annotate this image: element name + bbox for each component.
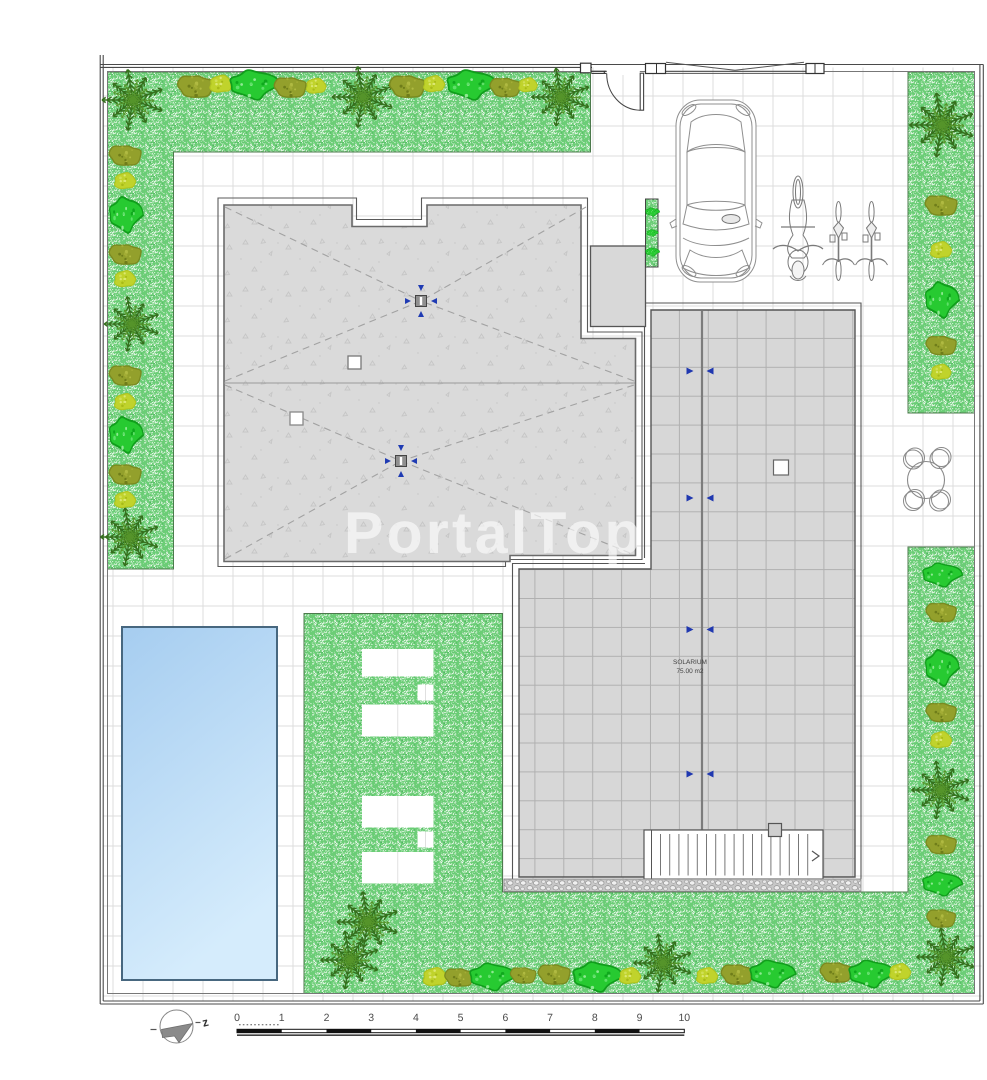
svg-text:0: 0 [234, 1012, 240, 1024]
svg-text:8: 8 [592, 1012, 598, 1024]
svg-text:SOLARIUM: SOLARIUM [673, 659, 707, 666]
svg-text:1: 1 [279, 1012, 285, 1024]
svg-text:9: 9 [637, 1012, 643, 1024]
svg-text:4: 4 [413, 1012, 419, 1024]
svg-text:75.00 m2: 75.00 m2 [676, 668, 703, 675]
svg-text:3: 3 [368, 1012, 374, 1024]
svg-text:10: 10 [678, 1012, 690, 1024]
svg-text:PortalTop: PortalTop [344, 500, 644, 566]
svg-text:5: 5 [458, 1012, 464, 1024]
svg-text:6: 6 [502, 1012, 508, 1024]
svg-text:7: 7 [547, 1012, 553, 1024]
svg-text:2: 2 [324, 1012, 330, 1024]
